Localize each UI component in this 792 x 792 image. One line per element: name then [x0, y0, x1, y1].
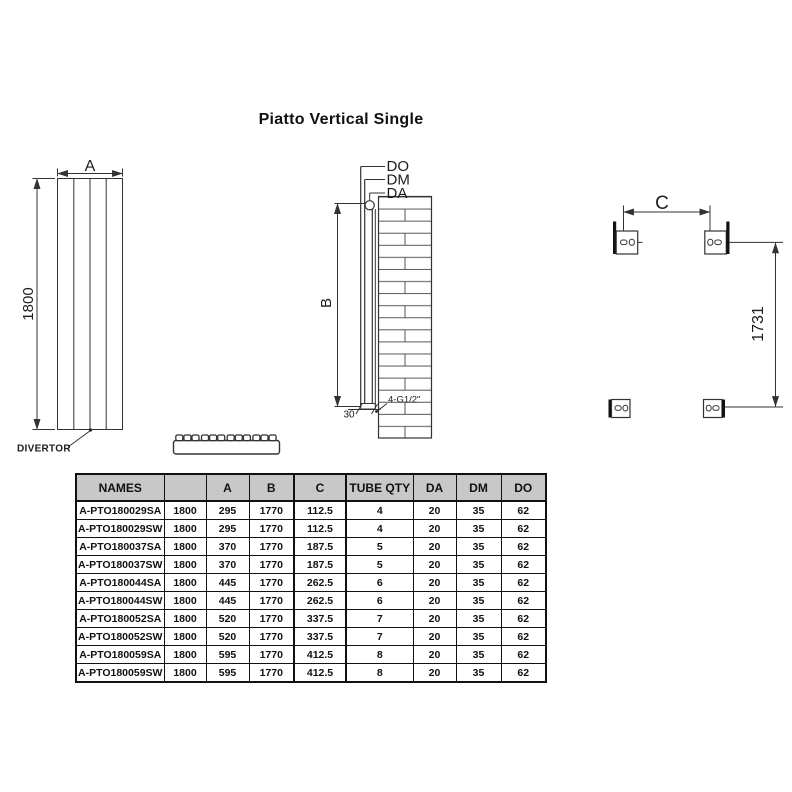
spec-cell: 35	[456, 628, 501, 646]
spec-cell: 62	[501, 628, 546, 646]
spec-cell-name: A-PTO180037SA	[76, 538, 164, 556]
spec-row: A-PTO180037SA18003701770187.55203562	[76, 538, 546, 556]
connection-label: 4-G1/2"	[388, 395, 420, 406]
bracket-bottom-right	[704, 400, 784, 418]
spec-table-body: A-PTO180029SA18002951770112.54203562A-PT…	[76, 501, 546, 682]
spec-cell: 412.5	[294, 646, 346, 664]
side-top-connector	[365, 201, 374, 210]
spec-cell: 20	[413, 501, 456, 520]
spec-cell: 445	[206, 574, 249, 592]
spec-cell: 295	[206, 520, 249, 538]
divertor-leader-line	[68, 431, 91, 448]
bracket-spacing-label: C	[655, 193, 669, 214]
top-view-body	[174, 441, 280, 455]
spec-header-row: NAMES A B C TUBE QTY DA DM DO	[76, 474, 546, 501]
spec-cell: 187.5	[294, 556, 346, 574]
spec-row: A-PTO180044SW18004451770262.56203562	[76, 592, 546, 610]
spec-cell: 370	[206, 538, 249, 556]
spec-cell: 62	[501, 538, 546, 556]
spec-cell: 4	[346, 520, 413, 538]
spec-cell: 20	[413, 664, 456, 683]
spec-cell: 445	[206, 592, 249, 610]
spec-cell: 412.5	[294, 664, 346, 683]
spec-cell: 112.5	[294, 501, 346, 520]
col-header-da: DA	[413, 474, 456, 501]
spec-cell: 1770	[249, 538, 294, 556]
spec-cell: 337.5	[294, 610, 346, 628]
spec-cell: 62	[501, 646, 546, 664]
spec-cell: 35	[456, 574, 501, 592]
spec-cell-name: A-PTO180052SW	[76, 628, 164, 646]
spec-cell: 1800	[164, 538, 206, 556]
col-header-dm: DM	[456, 474, 501, 501]
spec-cell: 35	[456, 592, 501, 610]
spec-cell: 35	[456, 646, 501, 664]
spec-cell-name: A-PTO180029SA	[76, 501, 164, 520]
technical-drawing: A 1800 DIVERTOR	[0, 0, 792, 470]
spec-cell: 1770	[249, 520, 294, 538]
bracket-top-right	[705, 206, 783, 255]
spec-cell: 20	[413, 592, 456, 610]
spec-cell: 20	[413, 574, 456, 592]
spec-cell: 1770	[249, 501, 294, 520]
spec-cell: 1800	[164, 592, 206, 610]
connection-leader-dot	[375, 410, 378, 413]
spec-cell: 62	[501, 592, 546, 610]
col-header-a: A	[206, 474, 249, 501]
spec-cell: 295	[206, 501, 249, 520]
spec-cell: 35	[456, 501, 501, 520]
spec-cell-name: A-PTO180052SA	[76, 610, 164, 628]
spec-cell: 7	[346, 628, 413, 646]
spec-cell: 1800	[164, 501, 206, 520]
spec-cell-name: A-PTO180029SW	[76, 520, 164, 538]
spec-cell: 8	[346, 664, 413, 683]
spec-cell: 20	[413, 520, 456, 538]
spec-row: A-PTO180052SA18005201770337.57203562	[76, 610, 546, 628]
spec-cell: 1800	[164, 520, 206, 538]
spec-cell: 20	[413, 538, 456, 556]
bottom-offset-label: 30	[343, 410, 355, 421]
spec-cell: 5	[346, 556, 413, 574]
top-view-fin-tabs	[176, 435, 276, 441]
spec-cell: 62	[501, 520, 546, 538]
spec-cell-name: A-PTO180059SA	[76, 646, 164, 664]
spec-cell: 1770	[249, 592, 294, 610]
spec-cell: 337.5	[294, 628, 346, 646]
spec-cell: 1800	[164, 646, 206, 664]
divertor-leader-dot	[89, 428, 92, 431]
bracket-height-label: 1731	[750, 306, 767, 342]
bracket-top-left	[613, 206, 643, 255]
spec-cell: 112.5	[294, 520, 346, 538]
spec-cell: 5	[346, 538, 413, 556]
col-header-do: DO	[501, 474, 546, 501]
spec-cell: 6	[346, 574, 413, 592]
spec-row: A-PTO180029SW18002951770112.54203562	[76, 520, 546, 538]
spec-table: NAMES A B C TUBE QTY DA DM DO A-PTO18002…	[75, 473, 547, 683]
spec-cell: 20	[413, 628, 456, 646]
spec-cell: 35	[456, 610, 501, 628]
spec-row: A-PTO180059SW18005951770412.58203562	[76, 664, 546, 683]
spec-cell: 520	[206, 610, 249, 628]
spec-cell: 1770	[249, 574, 294, 592]
bracket-bottom-left	[609, 400, 631, 418]
spec-cell: 187.5	[294, 538, 346, 556]
spec-cell: 35	[456, 520, 501, 538]
front-view-drawing	[33, 169, 123, 448]
top-view-drawing	[174, 435, 280, 454]
spec-cell: 595	[206, 664, 249, 683]
tube-height-dim-label: B	[318, 298, 335, 308]
spec-cell: 6	[346, 592, 413, 610]
spec-cell: 1800	[164, 664, 206, 683]
spec-cell-name: A-PTO180044SW	[76, 592, 164, 610]
spec-cell: 1770	[249, 610, 294, 628]
side-bottom-fitting	[361, 404, 376, 410]
spec-row: A-PTO180037SW18003701770187.55203562	[76, 556, 546, 574]
spec-cell: 62	[501, 501, 546, 520]
spec-row: A-PTO180044SA18004451770262.56203562	[76, 574, 546, 592]
spec-cell: 62	[501, 664, 546, 683]
spec-row: A-PTO180029SA18002951770112.54203562	[76, 501, 546, 520]
spec-cell: 370	[206, 556, 249, 574]
spec-cell: 62	[501, 556, 546, 574]
spec-cell: 1770	[249, 556, 294, 574]
col-header-b: B	[249, 474, 294, 501]
spec-cell: 62	[501, 610, 546, 628]
spec-cell: 35	[456, 556, 501, 574]
col-header-tube-qty: TUBE QTY	[346, 474, 413, 501]
inner-diameter-label: DA	[387, 185, 408, 202]
spec-cell: 1770	[249, 628, 294, 646]
spec-cell: 262.5	[294, 574, 346, 592]
spec-cell: 20	[413, 556, 456, 574]
spec-cell: 1800	[164, 628, 206, 646]
col-header-names: NAMES	[76, 474, 164, 501]
spec-cell: 35	[456, 538, 501, 556]
spec-cell: 62	[501, 574, 546, 592]
spec-cell: 20	[413, 610, 456, 628]
spec-cell: 1770	[249, 664, 294, 683]
spec-cell-name: A-PTO180037SW	[76, 556, 164, 574]
col-header-height	[164, 474, 206, 501]
spec-cell: 595	[206, 646, 249, 664]
front-height-dim-label: 1800	[20, 287, 37, 320]
spec-cell: 1800	[164, 574, 206, 592]
spec-cell: 35	[456, 664, 501, 683]
spec-cell: 4	[346, 501, 413, 520]
spec-cell: 1770	[249, 646, 294, 664]
divertor-label: DIVERTOR	[17, 444, 71, 455]
spec-cell: 262.5	[294, 592, 346, 610]
spec-cell: 1800	[164, 556, 206, 574]
spec-cell: 7	[346, 610, 413, 628]
front-width-dim-label: A	[85, 158, 96, 175]
spec-cell: 520	[206, 628, 249, 646]
spec-row: A-PTO180052SW18005201770337.57203562	[76, 628, 546, 646]
spec-cell-name: A-PTO180044SA	[76, 574, 164, 592]
spec-cell: 20	[413, 646, 456, 664]
spec-row: A-PTO180059SA18005951770412.58203562	[76, 646, 546, 664]
spec-cell-name: A-PTO180059SW	[76, 664, 164, 683]
col-header-c: C	[294, 474, 346, 501]
spec-cell: 8	[346, 646, 413, 664]
spec-cell: 1800	[164, 610, 206, 628]
